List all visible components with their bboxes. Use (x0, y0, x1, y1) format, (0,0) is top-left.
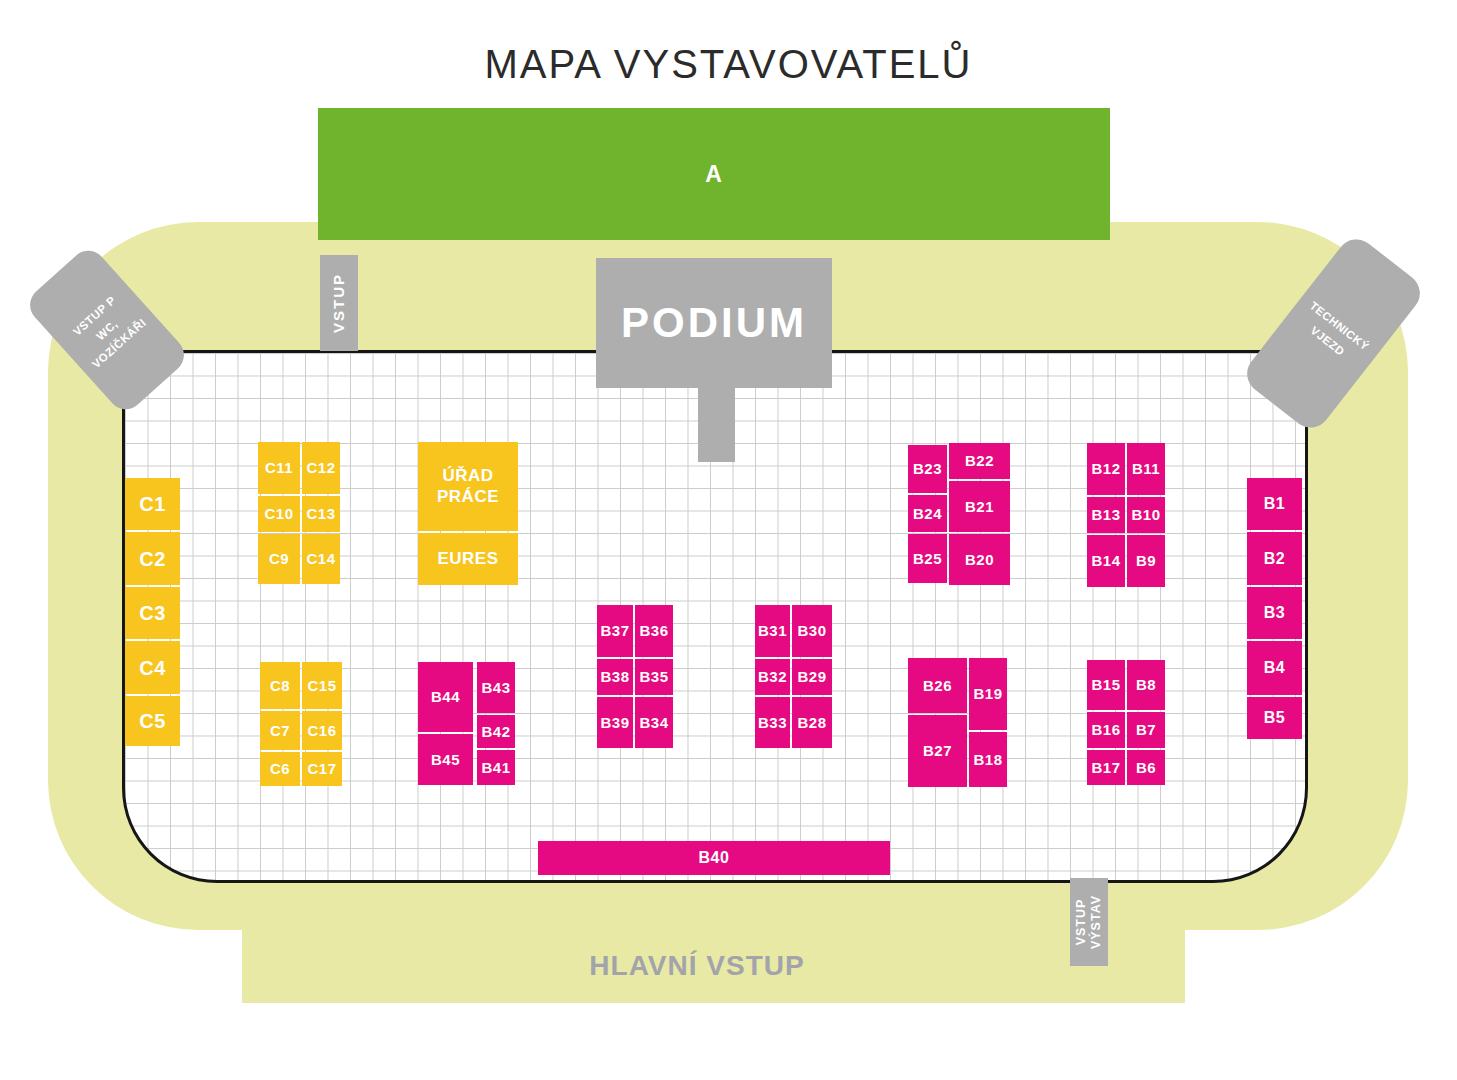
booth-B7: B7 (1127, 712, 1165, 748)
booth-C13: C13 (302, 496, 340, 532)
booth-C4: C4 (125, 641, 180, 694)
page-title: MAPA VYSTAVOVATELŮ (0, 42, 1457, 87)
booth-B27: B27 (908, 715, 967, 787)
booth-B42: B42 (477, 715, 515, 748)
entrance-exhibitor-label-line2: VÝSTAV (1089, 895, 1104, 949)
booth-B13: B13 (1087, 497, 1125, 533)
booth-B29: B29 (792, 659, 832, 695)
booth-C7: C7 (260, 711, 300, 750)
booth-B3: B3 (1247, 587, 1302, 639)
booth-B14: B14 (1087, 535, 1125, 587)
booth-C14: C14 (302, 534, 340, 584)
booth-B45: B45 (418, 734, 473, 785)
booth-C5: C5 (125, 696, 180, 746)
booth-B17: B17 (1087, 750, 1125, 785)
entrance-side-top: VSTUP (320, 255, 358, 351)
booth-B21: B21 (949, 481, 1010, 532)
booth-B34: B34 (635, 697, 673, 748)
booth-B5: B5 (1247, 697, 1302, 739)
booth-B28: B28 (792, 697, 832, 748)
booth-B18: B18 (969, 732, 1007, 787)
podium-label: PODIUM (621, 299, 807, 347)
booth-B44: B44 (418, 662, 473, 732)
podium-stem (698, 386, 735, 462)
booth-C17: C17 (302, 752, 342, 786)
booth-B30: B30 (792, 605, 832, 657)
booth-B40: B40 (538, 841, 890, 875)
exhibitor-map: MAPA VYSTAVOVATELŮ A PODIUM VSTUP VSTUP … (0, 0, 1457, 1080)
booth-C8: C8 (260, 662, 300, 709)
booth-B16: B16 (1087, 712, 1125, 748)
booth-B37: B37 (597, 605, 633, 657)
booth-B26: B26 (908, 658, 967, 713)
booth-B8: B8 (1127, 660, 1165, 710)
booth-B39: B39 (597, 697, 633, 748)
booth-B23: B23 (908, 445, 947, 493)
booth-B10: B10 (1127, 497, 1165, 533)
booth-B20: B20 (949, 534, 1010, 585)
booth-B15: B15 (1087, 660, 1125, 710)
booth-B9: B9 (1127, 535, 1165, 587)
booth-B12: B12 (1087, 443, 1125, 495)
booth-URAD-PRACE: ÚŘAD PRÁCE (418, 442, 518, 531)
main-entrance-label: HLAVNÍ VSTUP (397, 950, 997, 982)
booth-B35: B35 (635, 659, 673, 695)
booth-C3: C3 (125, 587, 180, 639)
booth-C15: C15 (302, 662, 342, 709)
booth-B24: B24 (908, 495, 947, 532)
booth-C11: C11 (258, 442, 300, 494)
booth-B1: B1 (1247, 478, 1302, 530)
booth-B25: B25 (908, 534, 947, 583)
entrance-exhibitor: VSTUP VÝSTAV (1070, 878, 1108, 966)
booth-B11: B11 (1127, 443, 1165, 495)
booth-C16: C16 (302, 711, 342, 750)
booth-B33: B33 (755, 697, 790, 748)
zone-hall-a: A (318, 108, 1110, 240)
booth-C9: C9 (258, 534, 300, 584)
booth-B32: B32 (755, 659, 790, 695)
booth-B2: B2 (1247, 532, 1302, 585)
entrance-side-top-label: VSTUP (330, 273, 348, 333)
booth-B19: B19 (969, 658, 1007, 730)
booth-B38: B38 (597, 659, 633, 695)
booth-B4: B4 (1247, 641, 1302, 695)
booth-C12: C12 (302, 442, 340, 494)
booth-B41: B41 (477, 750, 515, 785)
zone-hall-a-label: A (705, 161, 723, 188)
booth-C10: C10 (258, 496, 300, 532)
booth-B43: B43 (477, 662, 515, 713)
booth-EURES: EURES (418, 533, 518, 585)
booth-B31: B31 (755, 605, 790, 657)
booth-B22: B22 (949, 443, 1010, 479)
booth-B36: B36 (635, 605, 673, 657)
booth-B6: B6 (1127, 750, 1165, 785)
booth-C1: C1 (125, 478, 180, 530)
booth-C2: C2 (125, 532, 180, 585)
entrance-exhibitor-label-line1: VSTUP (1074, 895, 1089, 949)
podium: PODIUM (596, 258, 832, 388)
booth-C6: C6 (260, 752, 300, 786)
